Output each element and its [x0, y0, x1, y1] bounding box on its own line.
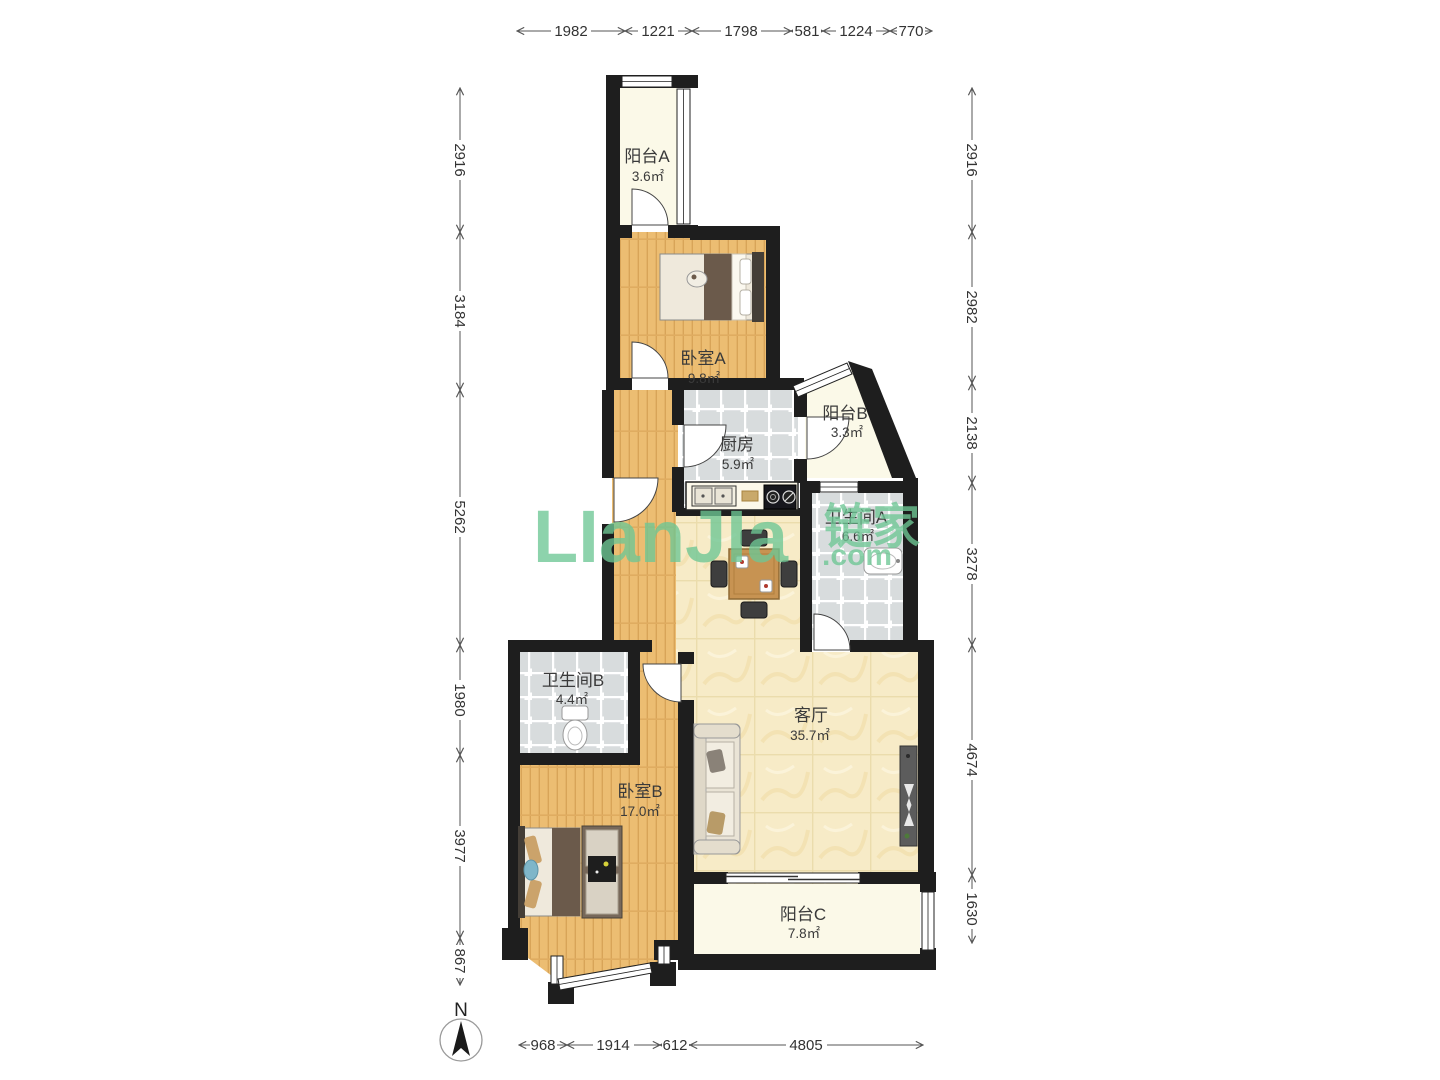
dim-right-3: 2138 — [963, 416, 980, 449]
room-label-balcony-a: 阳台A — [624, 147, 670, 166]
wall-segment — [628, 652, 640, 765]
wall-segment — [800, 481, 820, 493]
floorplan-canvas: 阳台A 3.6㎡ 卧室A 9.8㎡ 厨房 5.9㎡ 阳台B 3.3㎡ 卫生间A … — [0, 0, 1440, 1080]
dim-right-4: 3278 — [963, 547, 980, 580]
window-bay-right — [658, 946, 670, 964]
room-label-bathroom-b: 卫生间B — [542, 671, 604, 690]
wall-segment — [766, 226, 780, 378]
dim-top-5: 1224 — [839, 23, 872, 40]
dimension-chain-top: 1982 1221 1798 581 1224 770 — [517, 23, 932, 40]
room-label-bedroom-b: 卧室B — [617, 782, 662, 801]
dimension-chain-right: 2916 2982 2138 3278 4674 1630 — [963, 88, 980, 943]
sofa — [694, 724, 740, 854]
dim-left-5: 3977 — [451, 829, 468, 862]
dim-left-6: 867 — [451, 948, 468, 973]
room-area-kitchen: 5.9㎡ — [722, 457, 755, 472]
room-area-balcony-a: 3.6㎡ — [632, 169, 665, 184]
room-label-kitchen: 厨房 — [720, 435, 754, 454]
dim-left-1: 2916 — [451, 143, 468, 176]
wall-segment — [678, 700, 694, 956]
wall-segment — [920, 872, 936, 892]
wall-segment — [918, 645, 934, 884]
wall-segment — [606, 378, 632, 390]
floorplan-page: 阳台A 3.6㎡ 卧室A 9.8㎡ 厨房 5.9㎡ 阳台B 3.3㎡ 卫生间A … — [0, 0, 1440, 1080]
dim-top-4: 581 — [794, 23, 819, 40]
room-label-balcony-c: 阳台C — [780, 905, 826, 924]
wall-segment — [508, 753, 640, 765]
wall-segment — [858, 872, 922, 884]
toilet — [562, 706, 588, 750]
wall-segment — [672, 390, 684, 425]
tv-unit — [900, 746, 917, 846]
dim-bottom-2: 1914 — [596, 1037, 629, 1054]
watermark-com-text: .com — [822, 539, 892, 572]
window-balcony-c-right — [922, 892, 934, 950]
wall-segment — [606, 75, 620, 232]
dim-bottom-1: 968 — [530, 1037, 555, 1054]
wall-segment — [794, 459, 807, 483]
watermark-lianjia-text: LIanJIa — [533, 495, 789, 578]
wall-segment — [606, 232, 620, 378]
dim-right-2: 2982 — [963, 290, 980, 323]
room-label-living-room: 客厅 — [794, 706, 828, 725]
dim-top-6: 770 — [898, 23, 923, 40]
bed-b — [518, 826, 580, 918]
room-area-bedroom-b: 17.0㎡ — [620, 804, 660, 819]
room-label-balcony-b: 阳台B — [822, 404, 867, 423]
wall-segment — [502, 928, 528, 960]
compass: N — [440, 1000, 482, 1061]
wall-segment — [678, 954, 936, 970]
dim-left-2: 3184 — [451, 294, 468, 327]
room-area-bedroom-a: 9.8㎡ — [688, 371, 721, 386]
wall-segment — [800, 493, 812, 652]
dimension-chain-bottom: 968 1914 612 4805 — [519, 1037, 923, 1054]
dim-top-3: 1798 — [724, 23, 757, 40]
wall-segment — [508, 640, 652, 652]
bed-a — [660, 252, 764, 322]
wall-segment — [602, 390, 614, 478]
dim-right-1: 2916 — [963, 143, 980, 176]
room-label-bedroom-a: 卧室A — [680, 349, 726, 368]
compass-north-label: N — [454, 1000, 468, 1021]
window-bathroom-a-top — [820, 482, 858, 492]
wardrobe — [582, 826, 622, 918]
dimension-chain-left: 2916 3184 5262 1980 3977 867 — [451, 88, 468, 985]
watermark: LIanJIa 链家 .com — [533, 495, 920, 578]
room-area-balcony-b: 3.3㎡ — [831, 425, 864, 440]
dim-right-6: 1630 — [963, 892, 980, 925]
dim-left-3: 5262 — [451, 500, 468, 533]
dim-bottom-3: 612 — [662, 1037, 687, 1054]
wall-segment — [650, 962, 676, 986]
sliding-door-balcony-c — [726, 873, 860, 883]
dim-left-4: 1980 — [451, 683, 468, 716]
dim-right-5: 4674 — [963, 743, 980, 776]
window-balcony-a-top — [622, 76, 672, 87]
room-area-bathroom-b: 4.4㎡ — [556, 692, 589, 707]
room-area-balcony-c: 7.8㎡ — [788, 926, 821, 941]
wall-segment — [678, 652, 694, 664]
dim-top-1: 1982 — [554, 23, 587, 40]
room-area-living-room: 35.7㎡ — [790, 728, 830, 743]
window-balcony-a-right — [677, 89, 690, 224]
wall-segment — [690, 872, 728, 884]
dim-bottom-4: 4805 — [789, 1037, 822, 1054]
dim-top-2: 1221 — [641, 23, 674, 40]
